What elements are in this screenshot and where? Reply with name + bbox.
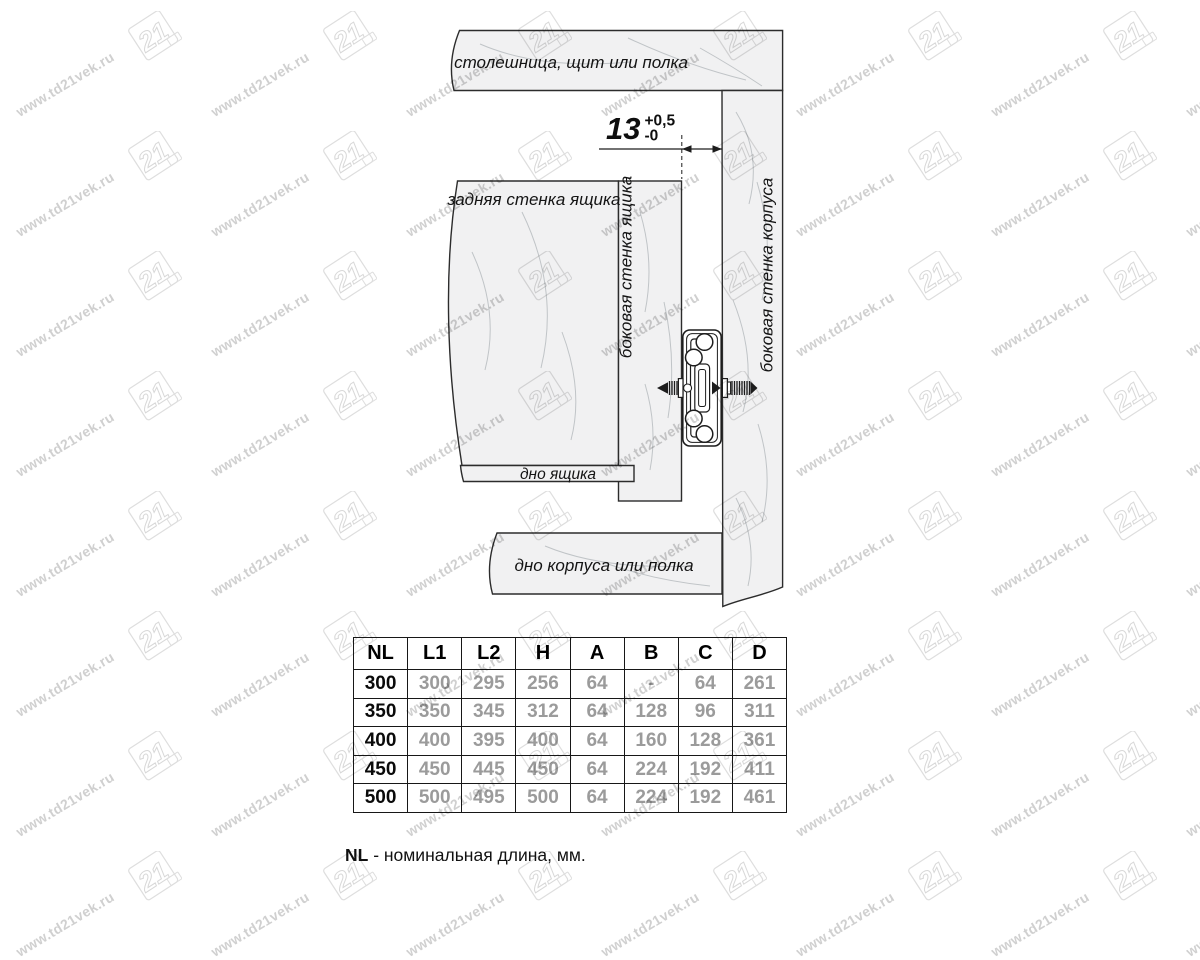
value-cell: 128 — [624, 698, 678, 727]
nl-value-cell: 500 — [354, 784, 408, 813]
footnote-text: - номинальная длина, мм. — [368, 845, 585, 865]
top-board-label: столешница, щит или полка — [454, 53, 688, 72]
column-header-l1: L1 — [408, 638, 462, 670]
value-cell: 500 — [516, 784, 570, 813]
column-header-h: H — [516, 638, 570, 670]
table-footnote: NL - номинальная длина, мм. — [345, 845, 586, 866]
column-header-b: B — [624, 638, 678, 670]
value-cell: 450 — [516, 755, 570, 784]
value-cell: 64 — [570, 784, 624, 813]
value-cell: 400 — [516, 727, 570, 756]
table-row: 45045044545064224192411 — [354, 755, 787, 784]
value-cell: 224 — [624, 784, 678, 813]
value-cell: 261 — [732, 670, 786, 699]
dimension-value: 13 — [606, 111, 640, 146]
value-cell: 495 — [462, 784, 516, 813]
value-cell: 361 — [732, 727, 786, 756]
column-header-d: D — [732, 638, 786, 670]
value-cell: - — [624, 670, 678, 699]
value-cell: 311 — [732, 698, 786, 727]
value-cell: 395 — [462, 727, 516, 756]
slide-cross-section — [683, 330, 721, 446]
nl-value-cell: 350 — [354, 698, 408, 727]
value-cell: 411 — [732, 755, 786, 784]
drawer-side-wall-label: боковая стенка ящика — [617, 176, 636, 358]
value-cell: 224 — [624, 755, 678, 784]
value-cell: 345 — [462, 698, 516, 727]
value-cell: 445 — [462, 755, 516, 784]
footnote-term: NL — [345, 845, 368, 865]
value-cell: 64 — [570, 755, 624, 784]
table-row: 30030029525664-64261 — [354, 670, 787, 699]
column-header-l2: L2 — [462, 638, 516, 670]
value-cell: 160 — [624, 727, 678, 756]
drawer-bottom-label: дно ящика — [520, 466, 596, 483]
column-header-c: C — [678, 638, 732, 670]
value-cell: 64 — [678, 670, 732, 699]
table-header-row: NLL1L2HABCD — [354, 638, 787, 670]
column-header-a: A — [570, 638, 624, 670]
value-cell: 256 — [516, 670, 570, 699]
value-cell: 450 — [408, 755, 462, 784]
value-cell: 128 — [678, 727, 732, 756]
nl-value-cell: 300 — [354, 670, 408, 699]
value-cell: 350 — [408, 698, 462, 727]
table-row: 50050049550064224192461 — [354, 784, 787, 813]
back-wall-panel — [448, 181, 618, 466]
value-cell: 500 — [408, 784, 462, 813]
column-header-nl: NL — [354, 638, 408, 670]
table-row: 40040039540064160128361 — [354, 727, 787, 756]
value-cell: 192 — [678, 784, 732, 813]
back-wall-label: задняя стенка ящика — [447, 190, 621, 209]
value-cell: 312 — [516, 698, 570, 727]
value-cell: 400 — [408, 727, 462, 756]
value-cell: 192 — [678, 755, 732, 784]
dimension-13mm: 13 +0,5 -0 — [599, 111, 722, 179]
value-cell: 295 — [462, 670, 516, 699]
nl-value-cell: 450 — [354, 755, 408, 784]
dimension-tolerance-minus: -0 — [645, 128, 659, 145]
cabinet-bottom-label: дно корпуса или полка — [514, 556, 693, 575]
value-cell: 300 — [408, 670, 462, 699]
cabinet-side-wall-label: боковая стенка корпуса — [758, 178, 777, 373]
nl-value-cell: 400 — [354, 727, 408, 756]
value-cell: 64 — [570, 698, 624, 727]
value-cell: 461 — [732, 784, 786, 813]
dimensions-spec-table: NLL1L2HABCD 30030029525664-6426135035034… — [353, 637, 787, 813]
value-cell: 96 — [678, 698, 732, 727]
value-cell: 64 — [570, 727, 624, 756]
table-row: 3503503453126412896311 — [354, 698, 787, 727]
value-cell: 64 — [570, 670, 624, 699]
